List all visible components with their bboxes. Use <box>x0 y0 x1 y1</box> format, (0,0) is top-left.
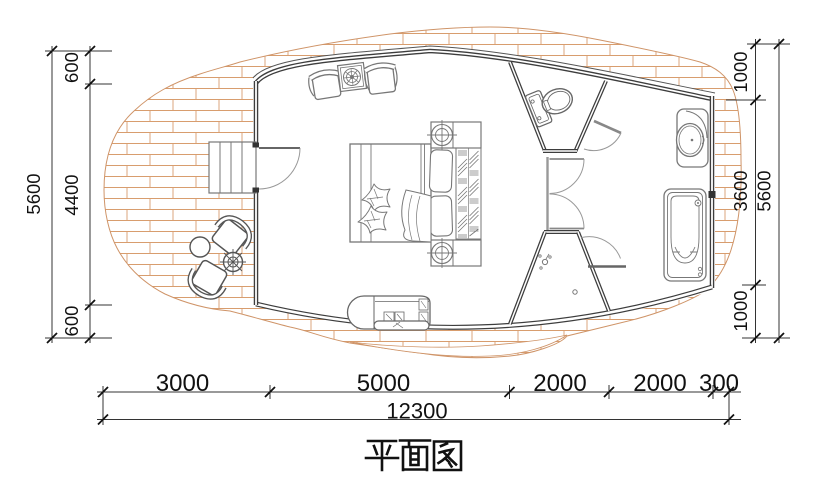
svg-text:2000: 2000 <box>533 370 586 397</box>
svg-text:5600: 5600 <box>23 173 44 214</box>
svg-text:2000: 2000 <box>633 370 686 397</box>
svg-text:1000: 1000 <box>730 290 751 331</box>
svg-text:3000: 3000 <box>156 370 209 397</box>
svg-text:5000: 5000 <box>357 370 410 397</box>
svg-text:1000: 1000 <box>730 51 751 92</box>
svg-text:12300: 12300 <box>386 399 447 424</box>
svg-text:600: 600 <box>61 306 82 337</box>
svg-text:300: 300 <box>699 370 739 397</box>
svg-text:3600: 3600 <box>730 170 751 211</box>
svg-text:600: 600 <box>61 52 82 83</box>
svg-text:4400: 4400 <box>61 174 82 215</box>
svg-text:5600: 5600 <box>754 170 775 211</box>
